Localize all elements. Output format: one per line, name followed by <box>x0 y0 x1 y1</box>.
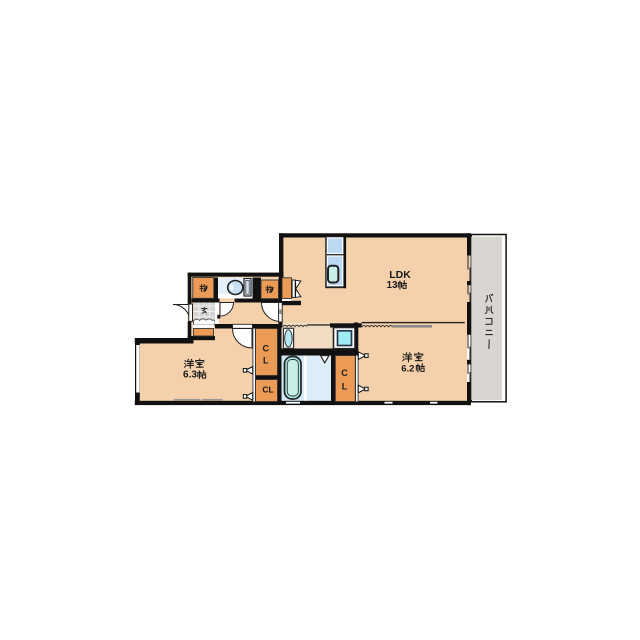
svg-text:L: L <box>263 356 269 366</box>
svg-text:LDK: LDK <box>389 269 411 281</box>
svg-text:C: C <box>341 368 348 378</box>
svg-text:CL: CL <box>262 385 273 395</box>
svg-text:6.2: 6.2 <box>401 363 414 374</box>
svg-text:6.3: 6.3 <box>183 370 197 381</box>
svg-text:13: 13 <box>386 280 398 291</box>
svg-text:C: C <box>263 344 270 354</box>
svg-text:L: L <box>342 381 348 391</box>
